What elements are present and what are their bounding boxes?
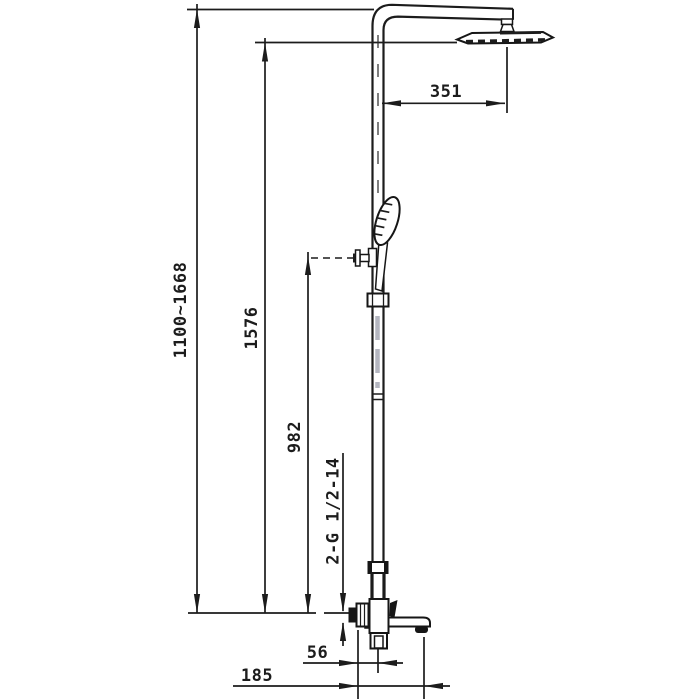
height-adjust-coupling (369, 562, 388, 599)
valve-handle (349, 604, 369, 627)
shower-dimension-drawing: 1100~1668 1576 982 2-G 1/2-14 351 56 (0, 0, 700, 700)
arrow-left-icon (382, 100, 401, 106)
hand-shower-head (369, 194, 404, 248)
valve-lower-union (371, 633, 388, 649)
dim-head-reach: 351 (382, 82, 505, 106)
dim-spout-reach: 185 (233, 666, 450, 689)
holder-height-label: 982 (285, 421, 305, 453)
hand-shower-face (369, 194, 404, 248)
arrow-left-icon (424, 683, 443, 689)
head-height-label: 1576 (242, 307, 262, 350)
arrow-left-icon (378, 660, 397, 666)
arrow-down-icon (340, 593, 346, 612)
arrow-right-icon (486, 100, 505, 106)
slider-collar (368, 294, 389, 307)
arrow-right-icon (339, 683, 358, 689)
hand-shower-holder (354, 249, 377, 267)
dim-overall-height: 1100~1668 (171, 4, 200, 613)
handle-disc (357, 604, 369, 627)
arrow-up-icon (194, 9, 200, 28)
coupling-edge (384, 562, 388, 573)
head-joint-upper (502, 19, 513, 25)
coupling-edge (369, 562, 373, 573)
spout-outlet (415, 626, 428, 633)
hand-shower-handle (376, 241, 388, 291)
hand-shower (354, 194, 405, 307)
collar-body (368, 294, 389, 307)
thread-spec-label: 2-G 1/2-14 (324, 457, 344, 564)
spout-reach-label: 185 (241, 666, 273, 686)
dim-thread-callout: 2-G 1/2-14 (324, 453, 347, 646)
arrow-up-icon (262, 43, 268, 62)
arrow-right-icon (339, 660, 358, 666)
arrow-up-icon (340, 622, 346, 641)
mixer-valve (349, 599, 431, 649)
head-top-edge (500, 33, 541, 34)
handle-cap (349, 608, 356, 623)
valve-body (370, 599, 389, 633)
union-inner (375, 636, 384, 648)
diverter-lever (390, 600, 398, 618)
arrow-up-icon (305, 256, 311, 275)
holder-knob (356, 250, 361, 266)
spout-offset-label: 56 (307, 643, 328, 663)
spout-body (389, 618, 431, 627)
arrow-down-icon (194, 594, 200, 613)
extension-lines (187, 10, 507, 700)
head-reach-label: 351 (430, 82, 462, 102)
arrow-down-icon (305, 594, 311, 613)
dim-head-height: 1576 (242, 38, 268, 613)
dim-holder-height: 982 (285, 252, 355, 613)
drawing-canvas: 1100~1668 1576 982 2-G 1/2-14 351 56 (0, 0, 700, 700)
head-ball-joint (501, 25, 515, 32)
overall-height-label: 1100~1668 (171, 262, 191, 359)
rain-shower-head (457, 19, 553, 44)
arrow-down-icon (262, 594, 268, 613)
holder-stem (360, 255, 369, 262)
bath-spout (389, 618, 431, 634)
